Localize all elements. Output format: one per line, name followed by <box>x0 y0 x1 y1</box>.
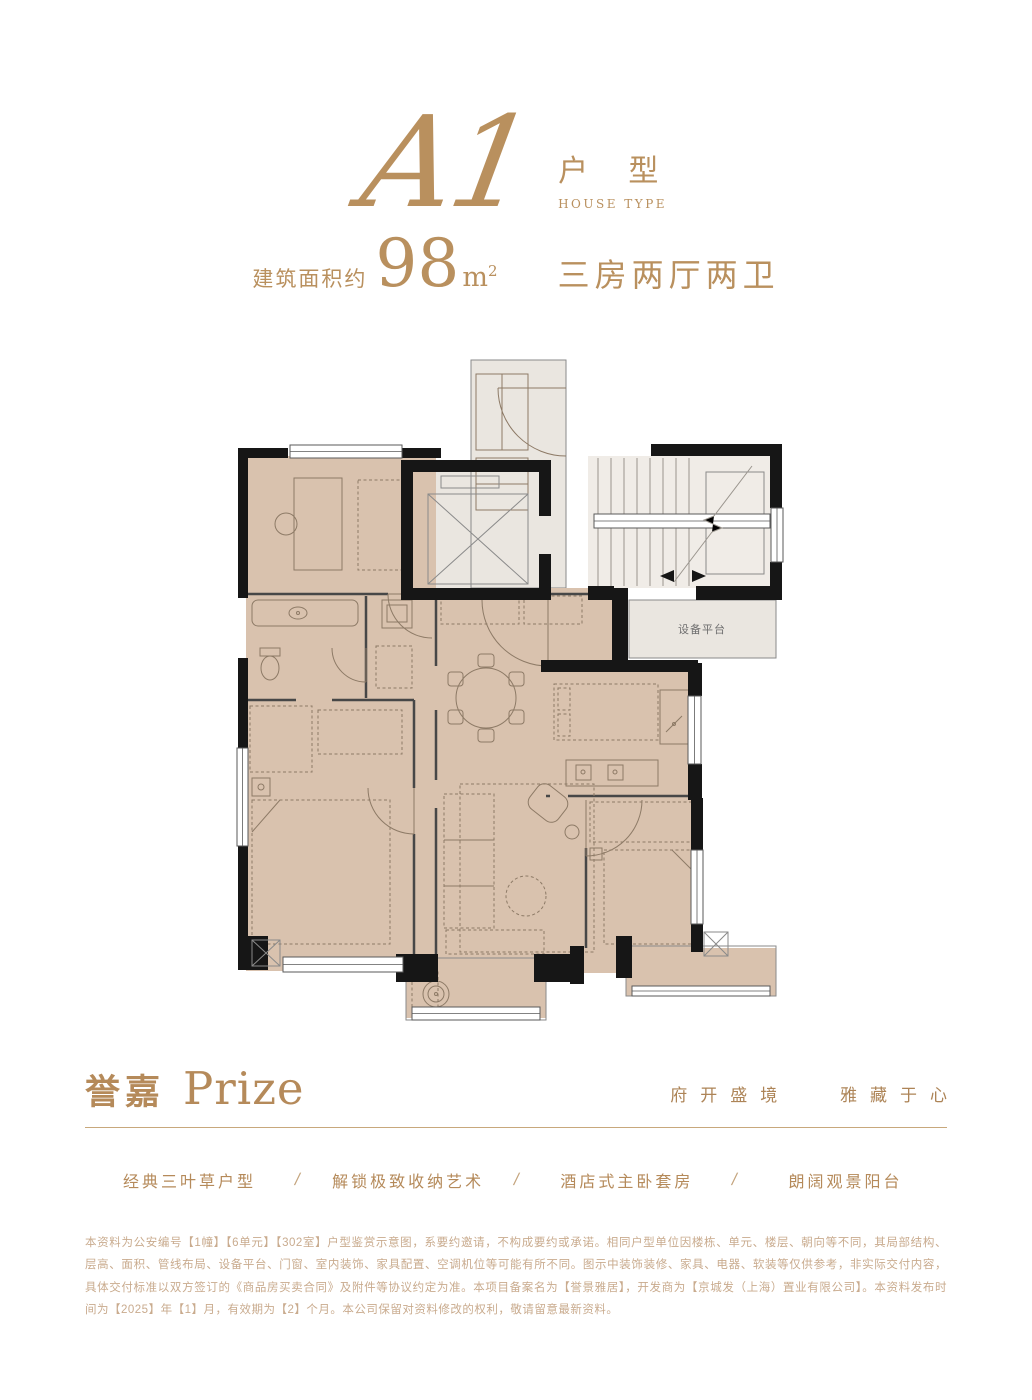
flyer-page: A1 户 型 HOUSE TYPE 建筑面积约 98 m2 三房两厅两卫 <box>0 0 1032 1400</box>
equipment-platform-label: 设备平台 <box>678 622 726 636</box>
area-value: 98 <box>375 234 459 293</box>
brand-name-cn: 誉嘉 <box>85 1064 165 1115</box>
feature-item: 解锁极致收纳艺术 <box>304 1168 513 1192</box>
floor-plan-container: 设备平台 <box>0 348 1032 1028</box>
feature-item: 酒店式主卧套房 <box>522 1168 731 1192</box>
area-unit: m2 <box>462 262 497 293</box>
feature-item: 经典三叶草户型 <box>85 1168 294 1192</box>
divider-line <box>85 1127 947 1128</box>
house-type-code: A1 <box>354 100 549 226</box>
floor-plan: 设备平台 <box>236 348 796 1028</box>
brand-tagline: 府开盛境 雅藏于心 <box>670 1081 960 1115</box>
area-prefix: 建筑面积约 <box>252 263 367 293</box>
layout-description: 三房两厅两卫 <box>558 250 780 296</box>
disclaimer-text: 本资料为公安编号【1幢】【6单元】【302室】户型鉴赏示意图，系要约邀请，不构成… <box>85 1232 947 1322</box>
house-type-label-cn: 户 型 <box>558 146 674 190</box>
feature-item: 朗阔观景阳台 <box>741 1168 950 1192</box>
tagline-right: 雅藏于心 <box>840 1086 960 1105</box>
feature-list: 经典三叶草户型 / 解锁极致收纳艺术 / 酒店式主卧套房 / 朗阔观景阳台 <box>85 1168 947 1192</box>
brand-row: 誉嘉 Prize 府开盛境 雅藏于心 <box>85 1062 947 1115</box>
tagline-left: 府开盛境 <box>670 1086 790 1105</box>
house-type-block: A1 户 型 HOUSE TYPE <box>0 100 1032 226</box>
house-type-label-en: HOUSE TYPE <box>558 197 667 211</box>
brand-name-en: Prize <box>183 1062 305 1115</box>
brand-name: 誉嘉 Prize <box>85 1062 305 1115</box>
area-line: 建筑面积约 98 m2 三房两厅两卫 <box>0 234 1032 296</box>
